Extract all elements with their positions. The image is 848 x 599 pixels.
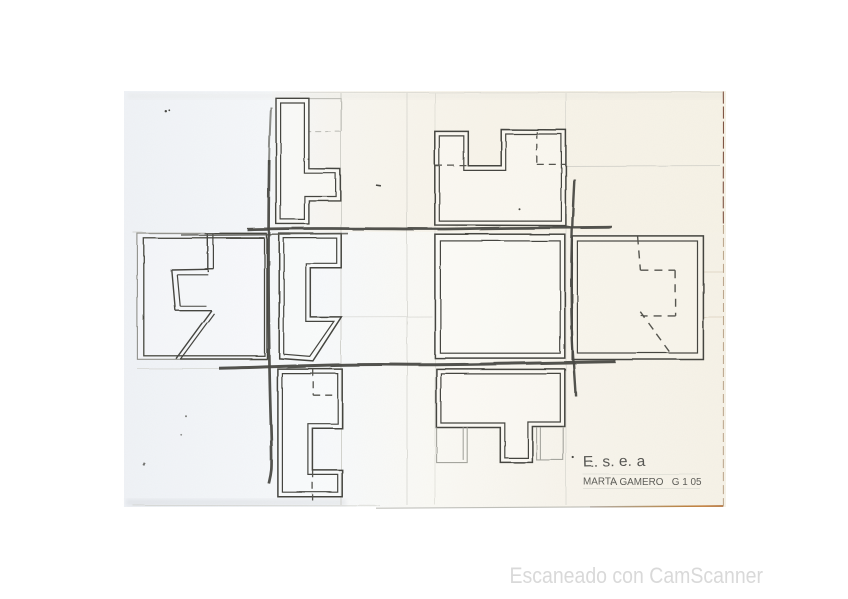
svg-text:E. s. e. a: E. s. e. a <box>583 452 646 471</box>
svg-text:MARTA GAMERO G 1 05: MARTA GAMERO G 1 05 <box>584 477 702 488</box>
svg-text:Escaneado con CamScanner: Escaneado con CamScanner <box>510 563 764 588</box>
